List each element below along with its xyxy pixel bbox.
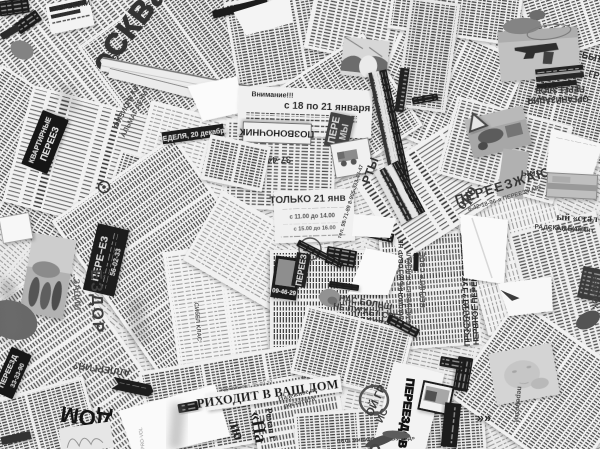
svg-text:ОБМЕНИВАЕТСЯ ЛЕЖАЛ: ОБМЕНИВАЕТСЯ ЛЕЖАЛ xyxy=(407,252,413,327)
svg-text:»»: »» xyxy=(477,410,491,425)
svg-text:ВЕРНИТЕ СВОЁ: ВЕРНИТЕ СВОЁ xyxy=(419,252,427,308)
svg-text:..ЗАЦИИ: ..ЗАЦИИ xyxy=(71,273,82,310)
svg-text:ый «стал: ый «стал xyxy=(556,212,598,225)
svg-text:ЗВОНОК: ЗВОНОК xyxy=(589,275,599,309)
svg-text:ПЕРЕЕЗДОВ: ПЕРЕЕЗДОВ xyxy=(535,84,585,95)
svg-text:Внимание!!!: Внимание!!! xyxy=(251,91,293,99)
svg-text:ЁЗДОР: ЁЗДОР xyxy=(87,269,107,335)
svg-text:ый: ый xyxy=(521,168,536,180)
